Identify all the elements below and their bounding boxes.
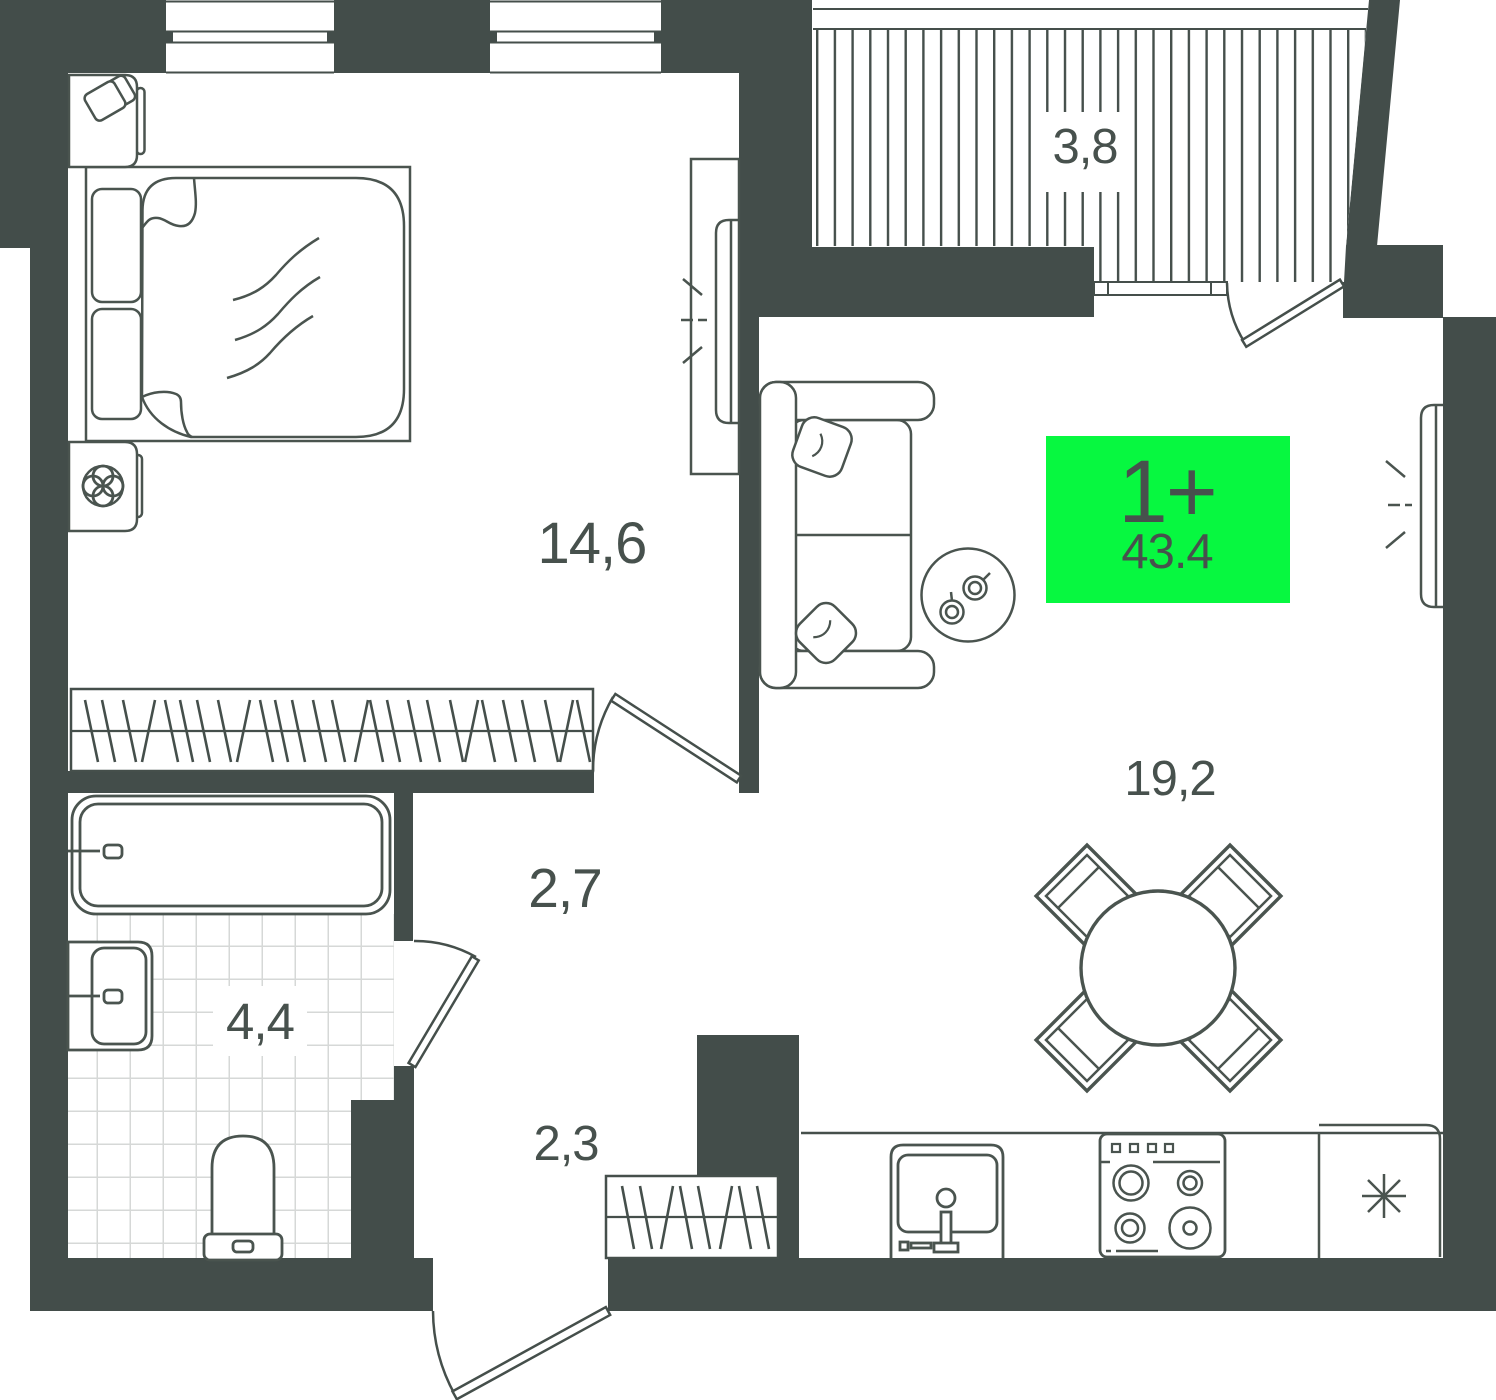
svg-text:2,7: 2,7: [528, 857, 601, 919]
svg-text:3,8: 3,8: [1052, 120, 1117, 174]
svg-text:2,3: 2,3: [533, 1117, 598, 1171]
svg-text:19,2: 19,2: [1124, 752, 1215, 806]
svg-text:43.4: 43.4: [1121, 525, 1212, 579]
svg-text:4,4: 4,4: [226, 993, 294, 1050]
svg-text:14,6: 14,6: [538, 511, 647, 576]
